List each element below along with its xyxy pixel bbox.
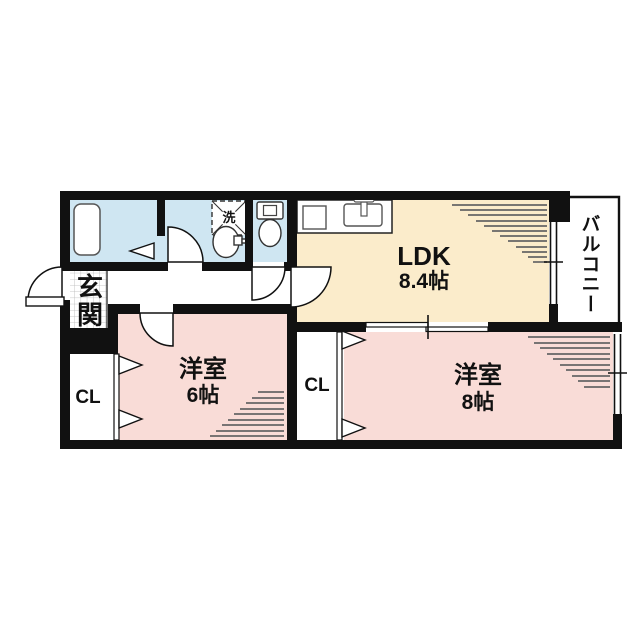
ldk-size-label: 8.4帖 [344, 270, 504, 293]
closet-left-label: CL [62, 388, 114, 409]
door-arc-entrance [26, 267, 64, 306]
stove-icon [303, 206, 326, 229]
toilet-icon [257, 202, 283, 247]
ldk-label: LDK [344, 242, 504, 271]
bathtub-icon [74, 204, 100, 255]
western6-label: 洋室 [123, 357, 283, 383]
kitchen-counter-icon [297, 196, 392, 233]
western8-label: 洋室 [398, 363, 558, 389]
floor-plan: LDK 8.4帖 洋室 6帖 洋室 8帖 CL CL 玄関 バルコニー 洗 [0, 0, 640, 640]
balcony-label: バルコニー [575, 202, 603, 326]
entrance-label: 玄関 [72, 271, 106, 331]
western6-size-label: 6帖 [123, 384, 283, 407]
laundry-label: 洗 [221, 211, 237, 225]
door-arc-toilet [252, 267, 285, 300]
closet-right-label: CL [291, 376, 343, 397]
western8-size-label: 8帖 [398, 391, 558, 414]
